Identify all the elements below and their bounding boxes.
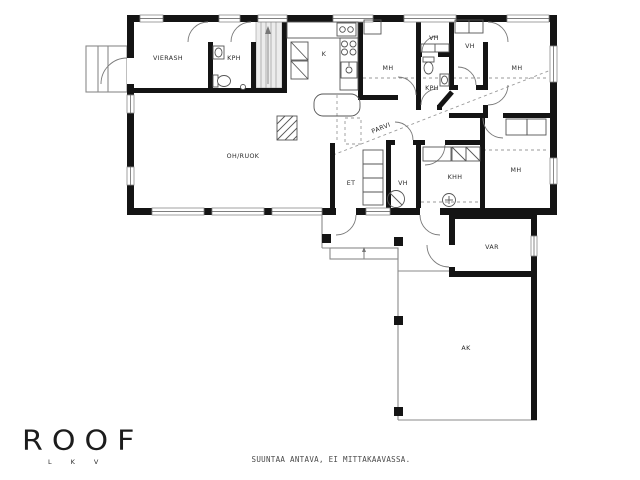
bathroom-diagonal-wall bbox=[439, 92, 452, 107]
toilet bbox=[213, 75, 231, 87]
dryer bbox=[466, 147, 480, 161]
room-label-kph-guest: KPH bbox=[227, 55, 241, 62]
room-label-vh-2: VH bbox=[465, 43, 475, 50]
fridge-symbol bbox=[291, 42, 308, 60]
room-label-ak: AK bbox=[461, 345, 471, 352]
room-label-kph-main: KPH bbox=[425, 85, 439, 92]
disclaimer-text: SUUNTAA ANTAVA, EI MITTAKAAVASSA. bbox=[0, 455, 640, 464]
room-label-mh-3: MH bbox=[511, 167, 522, 174]
room-label-kitchen: K bbox=[322, 51, 327, 58]
dashed-reference-lines bbox=[333, 70, 551, 202]
interior-walls bbox=[134, 15, 550, 208]
sink bbox=[213, 46, 224, 59]
stove bbox=[342, 41, 357, 55]
room-label-var: VAR bbox=[485, 244, 499, 251]
bedroom-closets bbox=[506, 119, 546, 135]
floor-plan-drawing: VIERASH KPH K MH VH VH KPH MH OH/RUOK PA… bbox=[0, 0, 640, 480]
room-label-et: ET bbox=[347, 180, 356, 187]
stairs bbox=[256, 20, 282, 88]
kitchen-sink-2 bbox=[341, 62, 357, 78]
room-label-oh-ruok: OH/RUOK bbox=[227, 153, 260, 160]
room-label-khh: KHH bbox=[448, 174, 463, 181]
room-label-mh-2: MH bbox=[512, 65, 523, 72]
room-label-parvi: PARVI bbox=[371, 121, 392, 135]
floor-drain-2 bbox=[443, 194, 456, 207]
room-label-vh-1: VH bbox=[429, 35, 439, 42]
toilet-2 bbox=[423, 57, 434, 74]
closet bbox=[421, 44, 449, 52]
room-label-vh-3: VH bbox=[398, 180, 408, 187]
sink-2 bbox=[440, 74, 449, 86]
utility-counter bbox=[423, 147, 451, 161]
freezer-symbol bbox=[291, 61, 308, 79]
washing-machine bbox=[452, 147, 466, 161]
room-label-vierash: VIERASH bbox=[153, 55, 183, 62]
kitchen-sink bbox=[337, 23, 356, 36]
entry-wardrobe bbox=[363, 150, 383, 205]
fireplace bbox=[277, 116, 297, 140]
floor-drain bbox=[241, 85, 246, 90]
floor-plan-page: VIERASH KPH K MH VH VH KPH MH OH/RUOK PA… bbox=[0, 0, 640, 480]
porch-posts bbox=[322, 234, 403, 416]
room-label-mh-1: MH bbox=[383, 65, 394, 72]
logo-wordmark: ROOF bbox=[22, 427, 143, 455]
